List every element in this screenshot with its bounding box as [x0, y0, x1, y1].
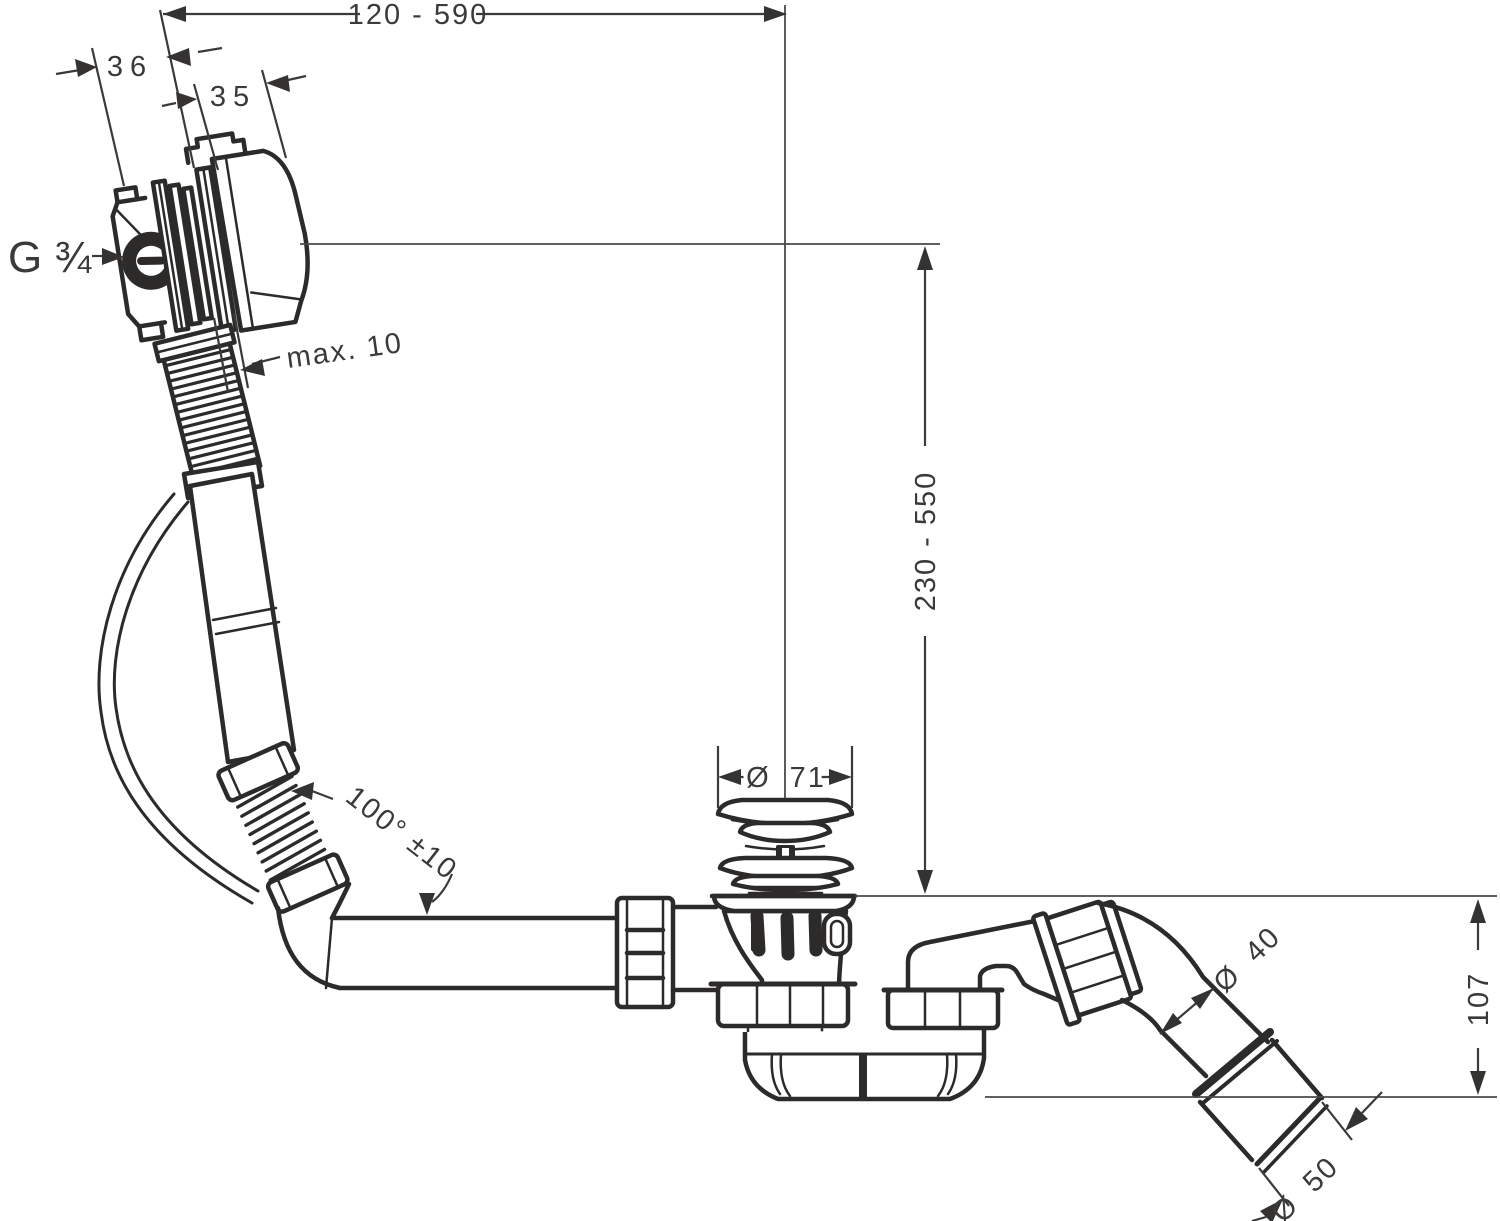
- dim-35-label: 35: [210, 81, 256, 113]
- dim-pipe-40-label: Ø 40: [1208, 921, 1288, 1000]
- dim-sleeve-diameter: Ø 50: [1252, 1092, 1382, 1221]
- dim-height-range-label: 230 - 550: [910, 471, 942, 612]
- dim-pipe-diameter: Ø 40: [1160, 921, 1287, 1034]
- outlet-sleeve: [1200, 1040, 1327, 1172]
- upper-corrugated-hose: [154, 325, 265, 484]
- trap-nut-left: [711, 984, 855, 1026]
- connection-sleeve: [184, 462, 294, 762]
- dim-outlet-height: 107: [1463, 899, 1495, 1095]
- dim-thread: G ¾: [8, 233, 124, 282]
- dim-plug-diameter-label: Ø 71: [746, 762, 826, 794]
- overflow-pipe: [278, 884, 617, 988]
- dim-max-10-label: max. 10: [285, 327, 405, 375]
- trap-bowl: [745, 1026, 984, 1099]
- dim-angle-label: 100° ±10: [340, 780, 464, 887]
- drawing-canvas: 120 - 590 36 35 G ¾ max. 10 23: [0, 0, 1500, 1221]
- pipe-union-nut: [617, 898, 722, 1007]
- dim-sleeve-50-label: Ø 50: [1266, 1151, 1346, 1221]
- overflow-head: [103, 125, 318, 348]
- technical-drawing: 120 - 590 36 35 G ¾ max. 10 23: [0, 0, 1500, 1221]
- dim-107-label: 107: [1463, 972, 1495, 1026]
- thread-label: G ¾: [8, 233, 92, 282]
- waste-tee: [724, 911, 850, 990]
- lower-corrugated-hose: [217, 742, 349, 914]
- dim-width-range-label: 120 - 590: [348, 0, 489, 31]
- dim-36-label: 36: [107, 51, 153, 83]
- trap-nut-right: [884, 990, 1002, 1028]
- reference-lines: [300, 5, 1497, 1097]
- dim-overflow-body-depth: 36: [56, 48, 222, 186]
- dim-height-range: 230 - 550: [910, 246, 942, 894]
